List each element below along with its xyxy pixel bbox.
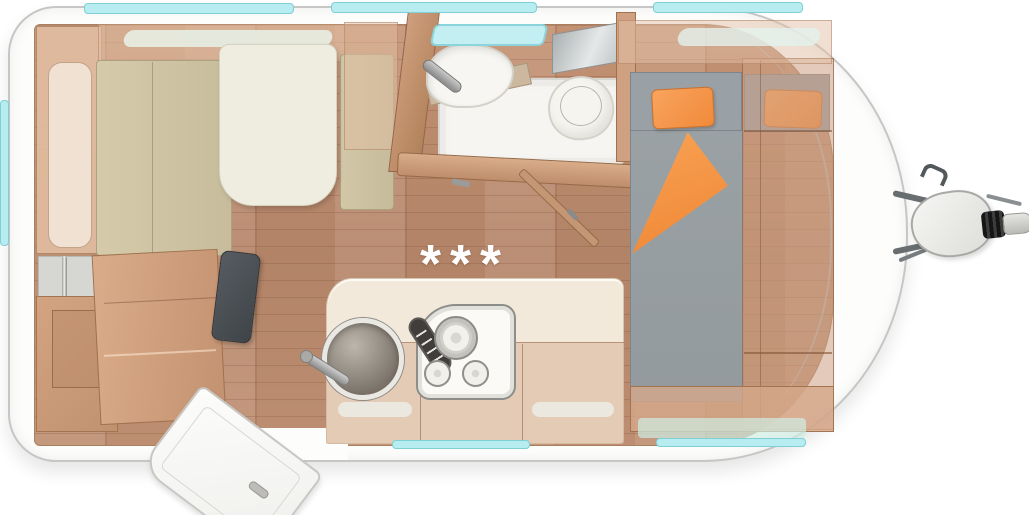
hob-burner-small <box>462 360 489 387</box>
jockey-wheel-handle <box>920 161 950 186</box>
hob-burner-small <box>424 360 451 387</box>
caravan-floorplan: *** <box>0 0 1029 515</box>
rear-window-strip <box>0 100 9 246</box>
roof-window-strip <box>84 3 294 14</box>
hob-burner-large <box>434 316 478 360</box>
wardrobe-divider-line <box>760 60 761 428</box>
bed-base-mat <box>638 418 806 438</box>
front-wardrobe <box>742 58 834 430</box>
bathroom-roof-light <box>430 24 549 46</box>
dinette-table <box>219 44 337 206</box>
heating-indicator: *** <box>420 234 540 294</box>
kitchen-round-sink <box>322 318 404 400</box>
wardrobe-shelf-line <box>744 130 832 132</box>
roof-window-strip <box>331 2 537 13</box>
kitchen-plinth <box>338 402 412 417</box>
coupling-head <box>1002 212 1029 236</box>
handbrake-lever <box>986 194 1022 207</box>
dinette-bench-cushion-split <box>152 62 153 254</box>
bed-pillow <box>651 86 715 129</box>
kitchen-plinth <box>532 402 614 417</box>
roof-window-strip <box>653 2 803 13</box>
kitchen-cabinet-divider <box>522 344 523 442</box>
window-through-locker-front <box>676 28 822 46</box>
dinette-bench-left <box>96 60 232 256</box>
side-window-strip <box>392 440 530 449</box>
rear-wardrobe-door <box>48 62 92 248</box>
wardrobe-shelf-line <box>744 352 832 354</box>
cabinet-beside-bathroom <box>344 22 398 150</box>
kitchen-faucet-knob <box>300 350 313 363</box>
side-window-strip <box>656 438 806 447</box>
